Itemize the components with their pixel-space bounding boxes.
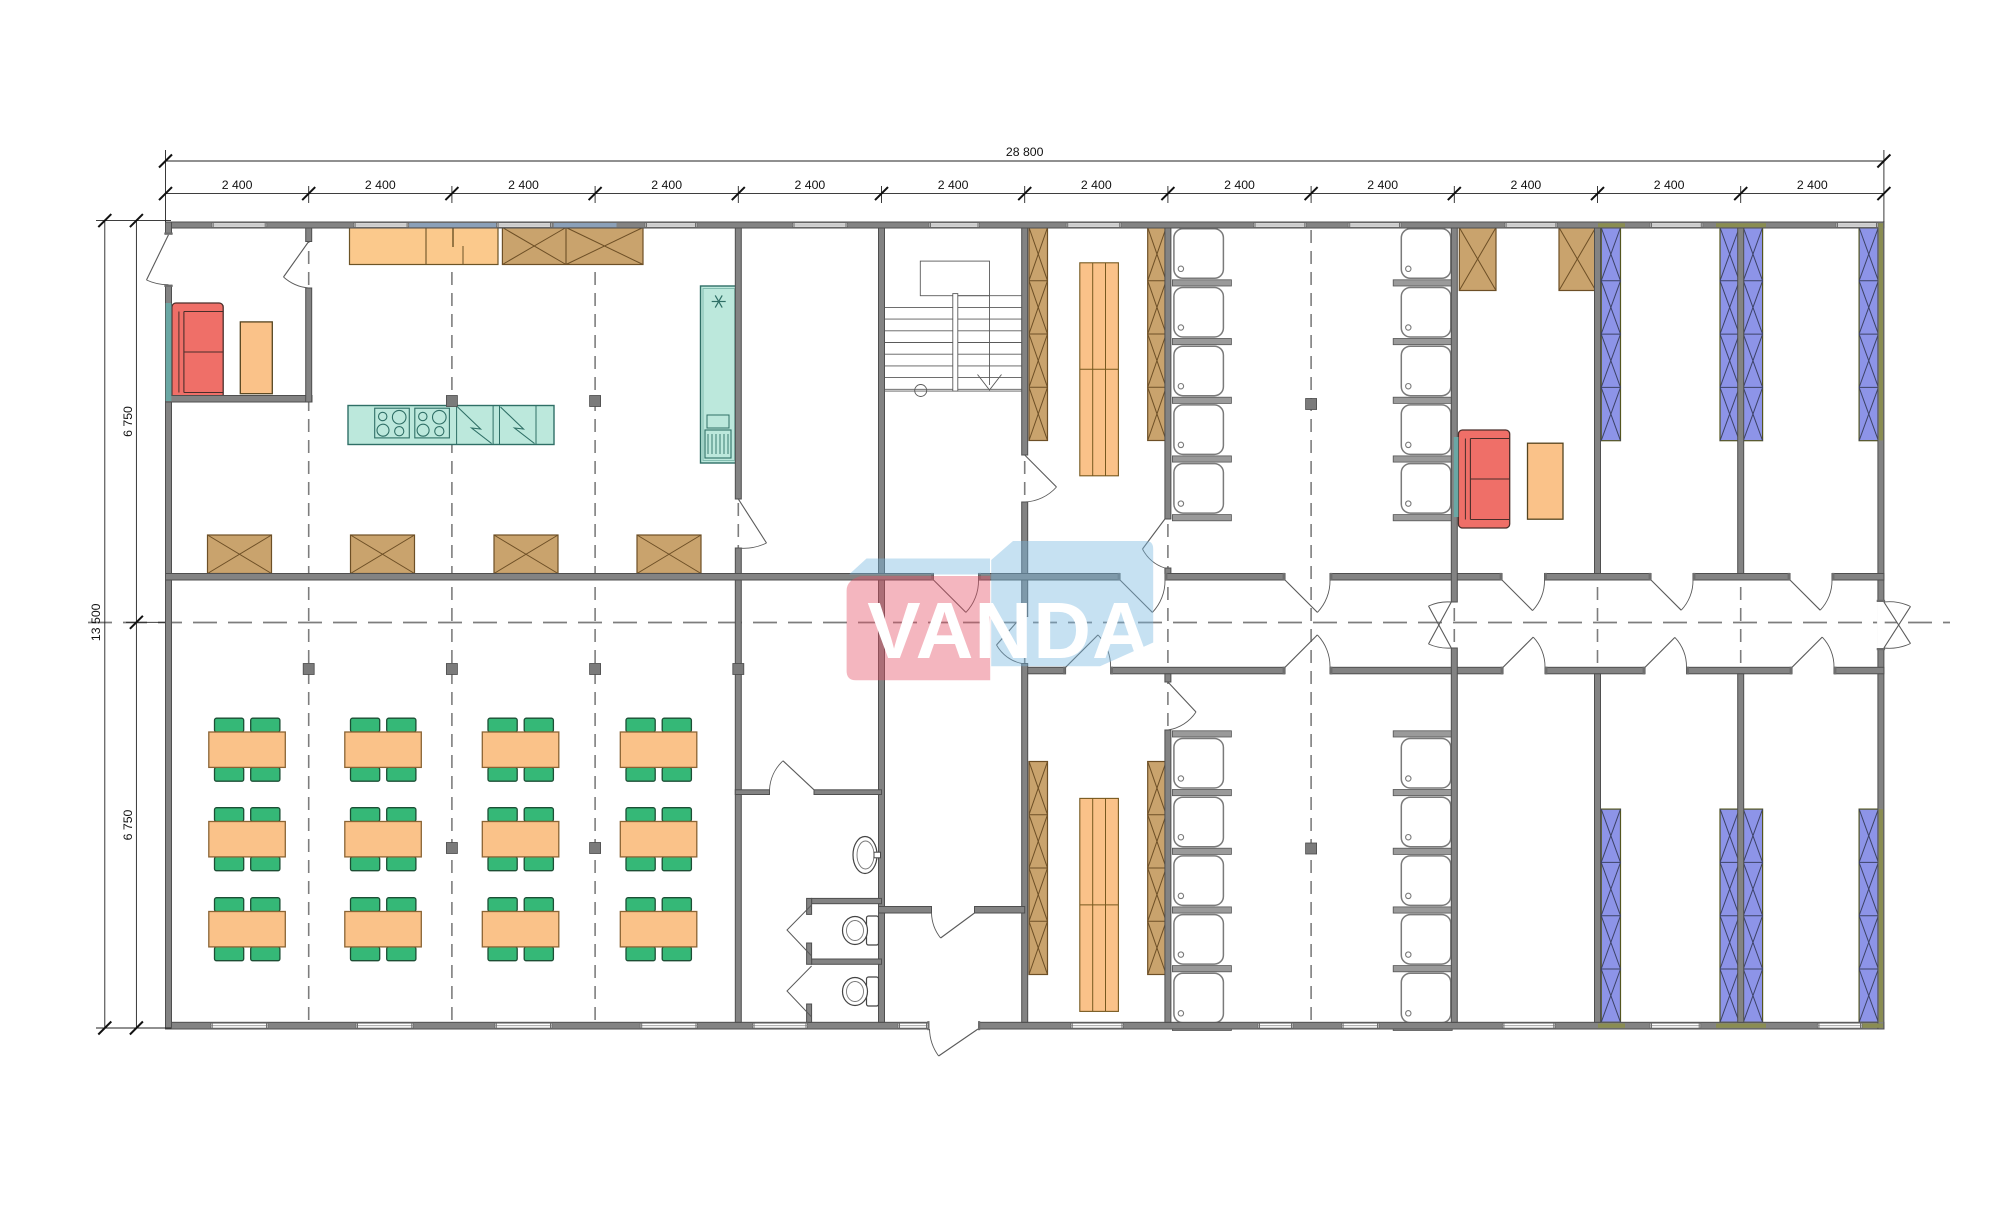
svg-text:VANDA: VANDA	[867, 586, 1151, 675]
svg-text:2 400: 2 400	[365, 178, 396, 192]
svg-text:2 400: 2 400	[795, 178, 826, 192]
svg-text:28 800: 28 800	[1006, 145, 1044, 159]
svg-text:6 750: 6 750	[121, 406, 135, 437]
svg-text:2 400: 2 400	[1797, 178, 1828, 192]
svg-text:2 400: 2 400	[1081, 178, 1112, 192]
svg-text:2 400: 2 400	[508, 178, 539, 192]
svg-text:2 400: 2 400	[1367, 178, 1398, 192]
svg-text:2 400: 2 400	[1224, 178, 1255, 192]
svg-text:2 400: 2 400	[938, 178, 969, 192]
svg-text:2 400: 2 400	[651, 178, 682, 192]
svg-text:2 400: 2 400	[222, 178, 253, 192]
svg-text:2 400: 2 400	[1654, 178, 1685, 192]
svg-text:6 750: 6 750	[121, 809, 135, 840]
svg-text:13 500: 13 500	[89, 603, 103, 641]
svg-text:2 400: 2 400	[1511, 178, 1542, 192]
